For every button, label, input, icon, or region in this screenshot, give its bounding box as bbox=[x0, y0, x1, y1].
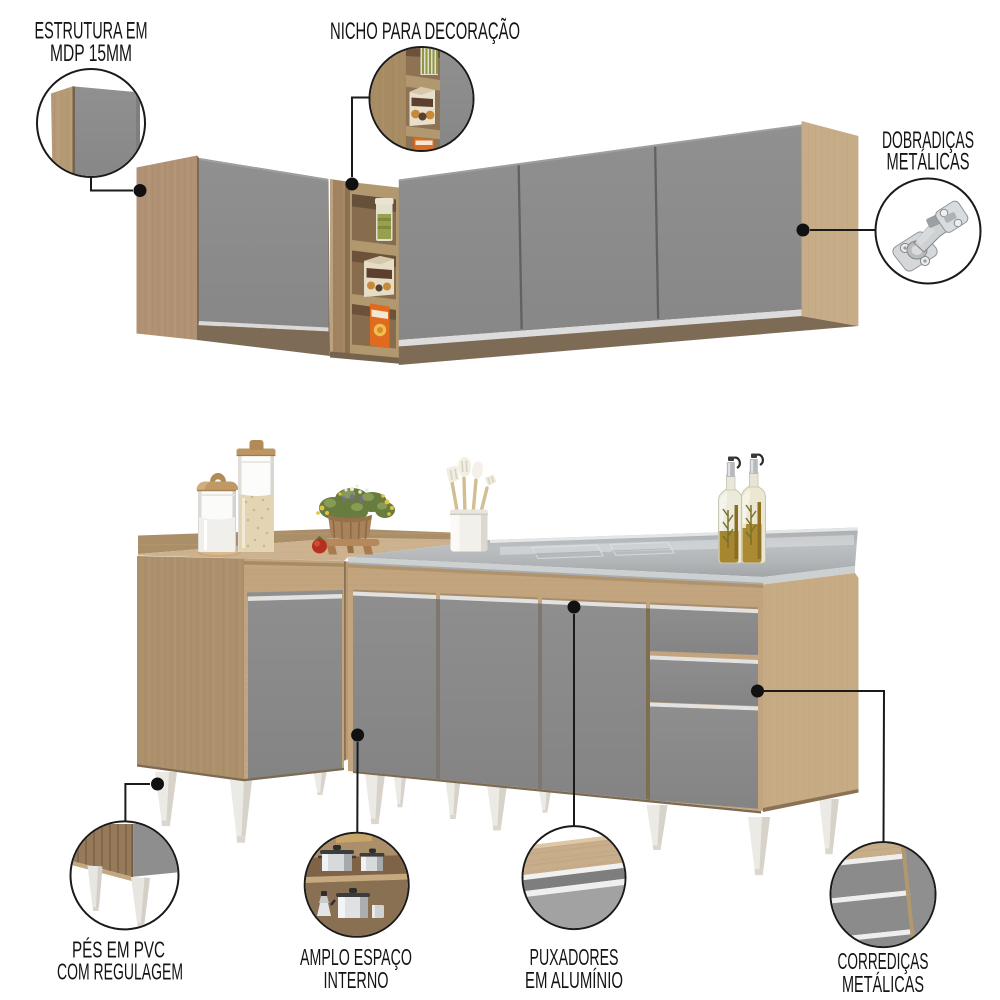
svg-text:EM ALUMÍNIO: EM ALUMÍNIO bbox=[525, 967, 623, 993]
svg-text:INTERNO: INTERNO bbox=[324, 967, 389, 993]
svg-text:METÁLICAS: METÁLICAS bbox=[842, 971, 924, 997]
svg-text:MDP 15MM: MDP 15MM bbox=[50, 40, 132, 67]
svg-text:METÁLICAS: METÁLICAS bbox=[887, 149, 970, 176]
svg-text:COM REGULAGEM: COM REGULAGEM bbox=[57, 959, 183, 985]
svg-text:NICHO PARA DECORAÇÃO: NICHO PARA DECORAÇÃO bbox=[330, 18, 520, 45]
